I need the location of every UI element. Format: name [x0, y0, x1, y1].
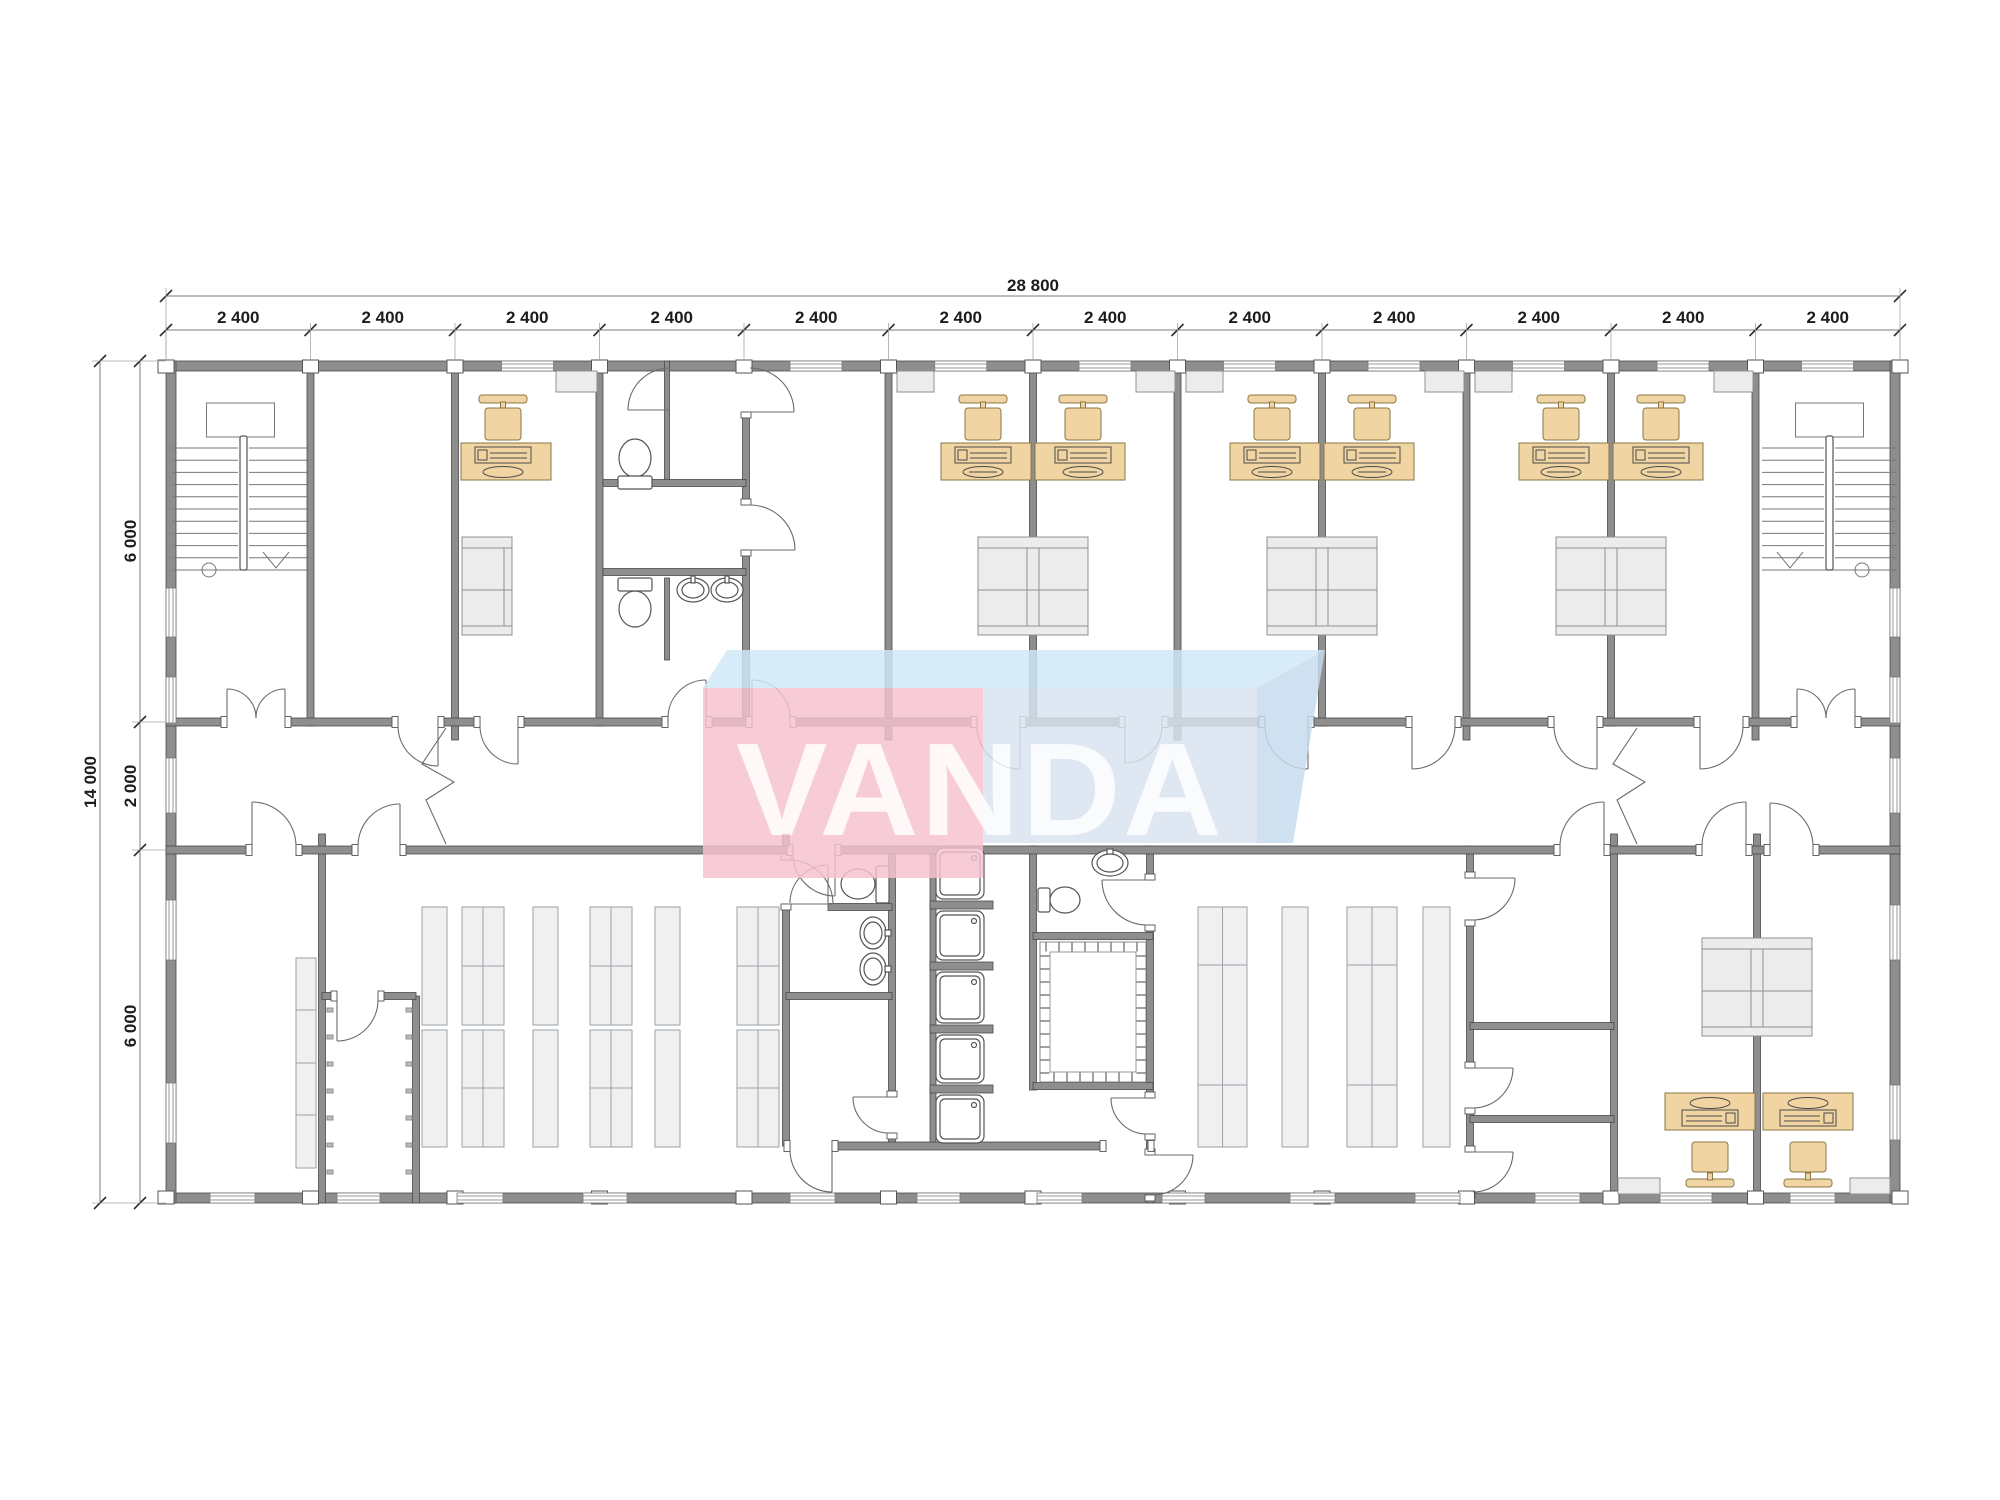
rect	[166, 1083, 176, 1143]
door-arc	[1700, 726, 1743, 769]
chair-seat	[1354, 408, 1390, 440]
wall	[930, 846, 936, 1146]
faucet	[885, 930, 891, 936]
hook-tick	[406, 1062, 412, 1066]
window	[337, 1193, 380, 1203]
door-arc	[1473, 1068, 1513, 1108]
rect	[1368, 361, 1420, 371]
path	[337, 1000, 378, 1041]
dim-bay-width: 2 400	[506, 308, 549, 327]
module-joint-block	[158, 1191, 174, 1204]
wall	[1604, 846, 1702, 854]
office-chair	[1248, 395, 1296, 440]
dim-bay-width: 2 400	[939, 308, 982, 327]
window	[1535, 1193, 1580, 1203]
module-joint-block	[1025, 360, 1041, 373]
path	[1560, 802, 1604, 846]
wall	[665, 578, 670, 660]
path	[1111, 1098, 1147, 1134]
window	[790, 361, 842, 371]
office-chair	[1784, 1142, 1832, 1187]
bed-outline	[978, 537, 1088, 635]
ellipse	[682, 582, 704, 598]
cabinet	[1618, 1178, 1660, 1194]
module-joint-block	[303, 1191, 319, 1204]
rect	[1224, 361, 1276, 371]
door-jamb	[474, 717, 480, 728]
desk-top	[1665, 1093, 1755, 1130]
wall	[1467, 920, 1474, 1068]
wall	[1467, 1108, 1474, 1152]
door-jamb	[1465, 1108, 1475, 1114]
floor-plan-canvas: VANDA 28 800 14 000 6 000 2 000 6 000 2 …	[0, 0, 2000, 1500]
door-jamb	[518, 717, 524, 728]
storage-rack	[296, 958, 316, 1168]
desk	[1665, 1093, 1755, 1130]
rect	[502, 361, 554, 371]
wall	[828, 904, 892, 911]
door-jamb	[1145, 1195, 1155, 1201]
window	[583, 1193, 627, 1203]
rect	[166, 900, 176, 960]
window	[1890, 905, 1900, 960]
dim-bay-width: 2 400	[1806, 308, 1849, 327]
rect	[210, 1193, 255, 1203]
door-arc	[398, 726, 438, 766]
cabinet	[1186, 371, 1223, 392]
door-arc	[358, 804, 400, 846]
wall	[1611, 846, 1618, 1198]
window	[166, 677, 176, 723]
hook-tick	[406, 1170, 412, 1174]
direction-arrow	[263, 552, 289, 568]
module-joint-block	[303, 360, 319, 373]
bed-head	[978, 537, 1088, 548]
rect	[1290, 1193, 1335, 1203]
wall	[1743, 718, 1797, 726]
faucet	[725, 576, 729, 583]
rect	[462, 537, 512, 548]
window	[166, 900, 176, 960]
wall-stub	[1752, 726, 1759, 740]
shower-partition	[930, 1085, 993, 1093]
module-joint-block	[1892, 1191, 1908, 1204]
storage-rack	[1347, 907, 1397, 1147]
rect	[1890, 758, 1900, 813]
door-arc	[790, 1150, 832, 1192]
storage-rack	[533, 1030, 558, 1147]
window	[790, 1193, 835, 1203]
window	[1368, 361, 1420, 371]
door-arc	[1102, 880, 1147, 925]
toilet-tank	[618, 578, 652, 591]
rect	[533, 907, 558, 1025]
rect	[1890, 677, 1900, 723]
break-line	[1613, 728, 1645, 844]
window	[166, 758, 176, 813]
faucet	[885, 966, 891, 972]
storage-rack	[533, 907, 558, 1025]
wall-stub	[319, 834, 326, 846]
door-jamb	[1145, 925, 1155, 931]
hook-tick	[406, 1089, 412, 1093]
dim-bay-width: 2 400	[1084, 308, 1127, 327]
door-jamb	[1855, 717, 1861, 728]
door-jamb	[741, 499, 751, 505]
stair-landing	[207, 403, 275, 437]
door-jamb	[741, 550, 751, 556]
shower-partition	[930, 1025, 993, 1033]
path	[256, 689, 285, 718]
path	[358, 804, 400, 846]
office-chair	[959, 395, 1007, 440]
office-chair	[479, 395, 527, 440]
storage-rack	[737, 907, 779, 1025]
wall	[319, 850, 326, 1203]
drain	[972, 919, 977, 924]
window	[1162, 1193, 1205, 1203]
toilet-bowl	[619, 439, 651, 477]
wall-stub	[1463, 726, 1470, 740]
shower-partition	[930, 901, 993, 909]
rect	[1890, 905, 1900, 960]
cabinet	[1850, 1178, 1890, 1194]
dim-bay-width: 2 400	[795, 308, 838, 327]
hook-tick	[327, 1035, 333, 1039]
door-jamb	[392, 717, 398, 728]
cabinet	[1425, 371, 1464, 392]
window	[1657, 361, 1709, 371]
door-jamb	[1813, 845, 1819, 856]
rect	[1660, 1193, 1712, 1203]
path	[480, 726, 518, 764]
office-bay3	[461, 443, 551, 635]
wall	[1308, 718, 1412, 726]
door-jamb	[781, 904, 791, 910]
toilet-icon	[618, 578, 652, 627]
module-joint-block	[158, 360, 174, 373]
wall	[285, 718, 398, 726]
sink-icon	[677, 576, 709, 602]
chair-seat	[1543, 408, 1579, 440]
door-arc	[337, 1000, 378, 1041]
hook-tick	[406, 1116, 412, 1120]
storage-rack	[1282, 907, 1308, 1147]
path	[853, 1097, 889, 1133]
wall	[1470, 1116, 1614, 1123]
rect	[1040, 942, 1146, 1082]
shower-tray	[936, 911, 984, 960]
path	[1770, 803, 1813, 846]
path	[1700, 726, 1743, 769]
bed-outline	[1702, 938, 1812, 1036]
faucet	[691, 576, 695, 583]
dim-bay-width: 2 400	[217, 308, 260, 327]
door-jamb	[662, 717, 668, 728]
door-jamb	[1597, 717, 1603, 728]
door-jamb	[400, 845, 406, 856]
floorplan-page: VANDA 28 800 14 000 6 000 2 000 6 000 2 …	[0, 0, 2000, 1500]
rect	[462, 626, 512, 635]
toilet-bowl	[1050, 887, 1080, 913]
door-jamb	[887, 1133, 897, 1139]
window	[935, 361, 987, 371]
dim-bay-width: 2 400	[1228, 308, 1271, 327]
door-jamb	[1743, 717, 1749, 728]
rect	[917, 1193, 960, 1203]
path	[227, 689, 256, 718]
door-arc	[256, 689, 285, 718]
dim-left-top: 6 000	[121, 520, 140, 563]
cabinet	[556, 371, 597, 392]
cabinet	[897, 371, 934, 392]
sink-icon	[711, 576, 743, 602]
chair-seat	[485, 408, 521, 440]
door-arc	[853, 1097, 889, 1133]
door-jamb	[1406, 717, 1412, 728]
dim-bay-width: 2 400	[1662, 308, 1705, 327]
rect	[1050, 952, 1136, 1072]
path	[1473, 1068, 1513, 1108]
desk	[1519, 443, 1609, 480]
door-jamb	[1604, 845, 1610, 856]
path	[1412, 726, 1455, 769]
rect	[1790, 1193, 1835, 1203]
staircase	[1762, 403, 1897, 577]
hook-tick	[327, 1170, 333, 1174]
wall	[1033, 1083, 1153, 1090]
door-jamb	[1465, 1062, 1475, 1068]
door-arc	[1560, 802, 1604, 846]
rect	[533, 1030, 558, 1147]
door-jamb	[1455, 717, 1461, 728]
watermark-top-facet	[703, 650, 1325, 688]
door-arc	[1797, 689, 1826, 718]
door-jamb	[1548, 717, 1554, 728]
module-joint-block	[447, 360, 463, 373]
ellipse	[864, 922, 882, 944]
door-arc	[628, 368, 670, 410]
chair-seat	[1643, 408, 1679, 440]
bed-double	[1267, 537, 1377, 635]
bed-foot	[978, 626, 1088, 635]
window	[1415, 1193, 1460, 1203]
door-jamb	[438, 717, 444, 728]
chair-seat	[1065, 408, 1101, 440]
path	[668, 680, 706, 718]
door-arc	[1153, 1155, 1193, 1195]
sink-icon	[860, 917, 891, 949]
module-joint-block	[881, 1191, 897, 1204]
toilet-tank	[1038, 888, 1050, 912]
window	[1890, 588, 1900, 637]
path	[628, 368, 670, 410]
window	[1513, 361, 1565, 371]
path	[1473, 878, 1515, 920]
bed-outline	[1267, 537, 1377, 635]
bed-double	[1556, 537, 1666, 635]
rect	[1802, 361, 1854, 371]
door-arc	[1473, 878, 1515, 920]
door-arc	[252, 802, 296, 846]
watermark-text: VANDA	[736, 716, 1224, 863]
drain	[972, 1043, 977, 1048]
door-jamb	[784, 1141, 790, 1152]
rect	[166, 677, 176, 723]
desk	[1035, 443, 1125, 480]
rect	[1423, 907, 1450, 1147]
rect	[166, 758, 176, 813]
office-chair	[1348, 395, 1396, 440]
door-jamb	[1465, 920, 1475, 926]
wall	[743, 412, 750, 505]
rect	[583, 1193, 627, 1203]
rect	[1282, 907, 1308, 1147]
wall	[1033, 933, 1153, 940]
door-arc	[1111, 1098, 1147, 1134]
hook-tick	[327, 1008, 333, 1012]
bed-double	[978, 537, 1088, 635]
door-arc	[750, 505, 795, 550]
door-jamb	[1746, 845, 1752, 856]
wall	[665, 361, 670, 483]
desk	[1230, 443, 1320, 480]
path	[750, 368, 794, 412]
rect	[422, 1030, 447, 1147]
window	[210, 1193, 255, 1203]
bed-double	[1702, 938, 1812, 1036]
wall	[1470, 1023, 1614, 1030]
wall	[307, 361, 314, 726]
door-jamb	[832, 1141, 838, 1152]
wall-stub	[1754, 834, 1761, 846]
door-jamb	[1148, 1141, 1154, 1152]
module-joint-block	[1748, 1191, 1764, 1204]
rect	[1162, 1193, 1205, 1203]
door-jamb	[1145, 1134, 1155, 1140]
wall	[1752, 361, 1759, 726]
toilet-tank	[618, 476, 652, 489]
window	[1079, 361, 1131, 371]
rect	[337, 1193, 380, 1203]
dim-left-mid: 2 000	[121, 765, 140, 808]
module-joint-block	[1892, 360, 1908, 373]
window	[917, 1193, 960, 1203]
rect	[1513, 361, 1565, 371]
rect	[1890, 1085, 1900, 1140]
dim-bay-width: 2 400	[361, 308, 404, 327]
window	[166, 1083, 176, 1143]
staircase	[172, 403, 309, 577]
cabinet	[1475, 371, 1512, 392]
bed-head	[1702, 938, 1812, 949]
window	[1802, 361, 1854, 371]
bed-foot	[1267, 626, 1377, 635]
storage-rack	[655, 1030, 680, 1147]
direction-arrow	[1777, 552, 1803, 568]
wall	[783, 904, 790, 1146]
technical-room-hatch	[1040, 942, 1146, 1082]
office-chair	[1686, 1142, 1734, 1187]
door-arc	[1702, 802, 1746, 846]
rect	[422, 907, 447, 1025]
chair-seat	[1254, 408, 1290, 440]
office-chair	[1537, 395, 1585, 440]
door-jamb	[221, 717, 227, 728]
hook-tick	[406, 1143, 412, 1147]
door-jamb	[296, 845, 302, 856]
window	[1660, 1193, 1712, 1203]
path	[1554, 726, 1597, 769]
dim-total-width: 28 800	[1007, 276, 1059, 295]
module-joint-block	[736, 1191, 752, 1204]
sink-icon	[860, 953, 891, 985]
shower-tray	[936, 972, 984, 1023]
drain	[972, 1103, 977, 1108]
dim-total-height: 14 000	[81, 756, 100, 808]
wall	[452, 361, 459, 726]
rect	[457, 1193, 503, 1203]
wall	[1147, 925, 1154, 1098]
door-jamb	[1145, 1092, 1155, 1098]
desk-top	[1763, 1093, 1853, 1130]
shower-tray	[936, 1095, 984, 1143]
shower-partition	[930, 962, 993, 970]
bed-foot	[1702, 1027, 1812, 1036]
door-jamb	[1100, 1141, 1106, 1152]
toilet-icon	[1038, 887, 1080, 913]
module-joint-block	[881, 360, 897, 373]
rect	[1657, 361, 1709, 371]
bed-outline	[1556, 537, 1666, 635]
dim-bay-width: 2 400	[650, 308, 693, 327]
desk	[1324, 443, 1414, 480]
door-arc	[1770, 803, 1813, 846]
storage-rack	[590, 907, 632, 1025]
door-arc	[1412, 726, 1455, 769]
door-jamb	[1465, 872, 1475, 878]
dim-left-bottom: 6 000	[121, 1005, 140, 1048]
toilet-bowl	[619, 591, 651, 627]
storage-rack	[655, 907, 680, 1025]
door-jamb	[887, 1091, 897, 1097]
door-jamb	[246, 845, 252, 856]
path	[1153, 1155, 1193, 1195]
ellipse	[716, 582, 738, 598]
shower-tray	[936, 1035, 984, 1083]
rect	[166, 588, 176, 637]
door-jamb	[1554, 845, 1560, 856]
wall	[166, 846, 252, 854]
window	[1890, 1085, 1900, 1140]
dim-bay-width: 2 400	[1517, 308, 1560, 327]
storage-rack	[1423, 907, 1450, 1147]
rect	[1890, 588, 1900, 637]
storage-rack	[462, 1030, 504, 1147]
office-chair	[1059, 395, 1107, 440]
hook-tick	[327, 1089, 333, 1093]
wall	[1597, 718, 1700, 726]
door-jamb	[378, 991, 384, 1001]
wall-stub	[452, 726, 459, 740]
storage-rack	[737, 1030, 779, 1147]
window	[1890, 677, 1900, 723]
wall	[603, 569, 746, 576]
wall	[413, 996, 420, 1203]
desk	[1613, 443, 1703, 480]
drain	[972, 980, 977, 985]
chair-stem	[1806, 1173, 1811, 1180]
